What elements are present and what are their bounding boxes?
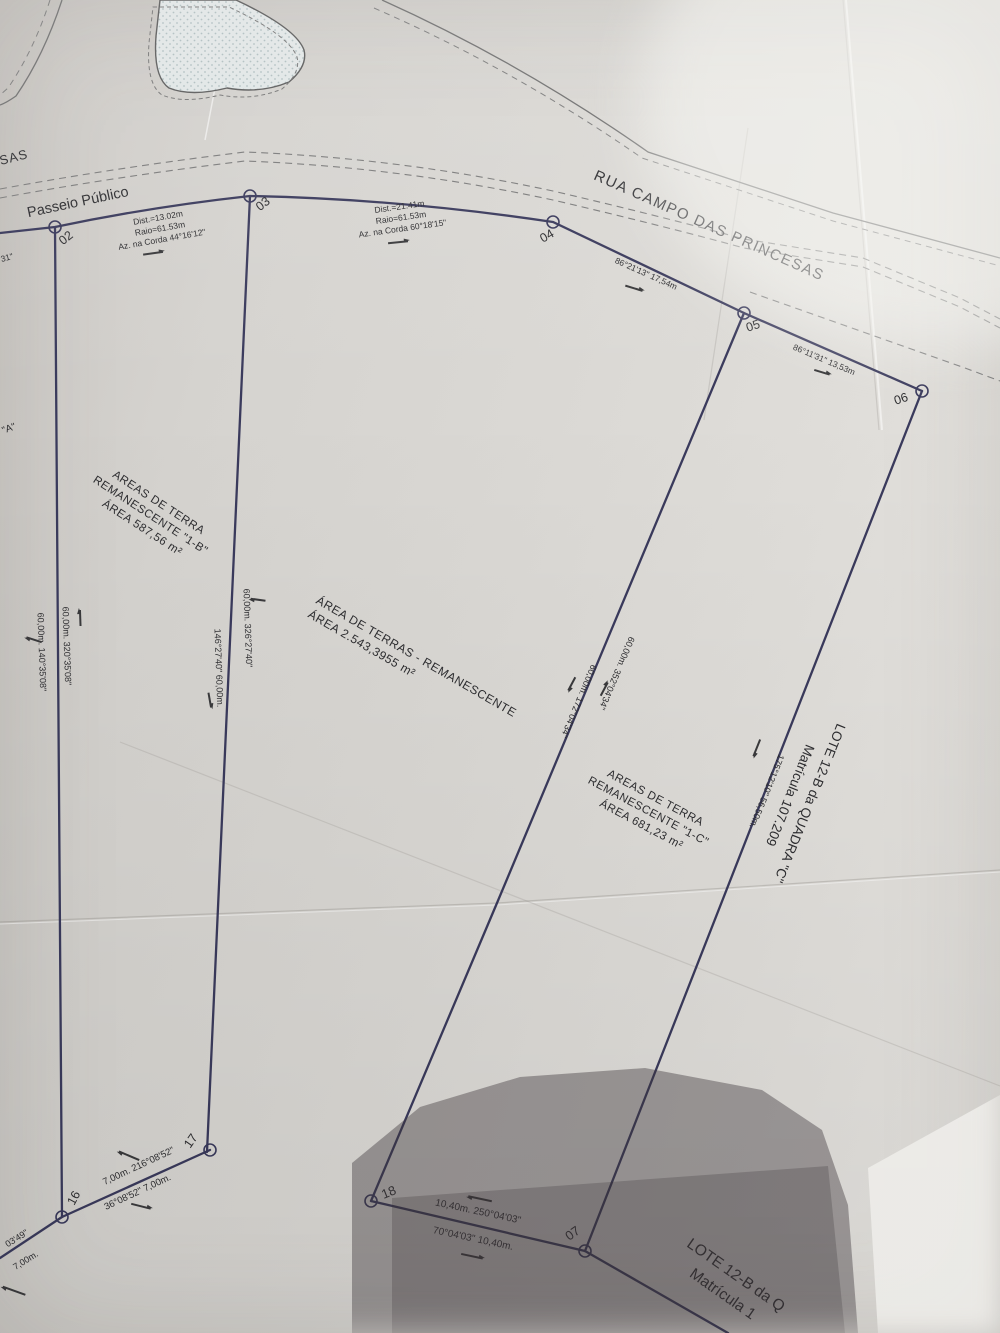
bearing-corner-partial-azimuth: 03'49": [3, 1227, 30, 1250]
area-1b-line3: ÁREA 587,56 m²: [82, 486, 203, 572]
segment-18-07: [371, 1201, 585, 1251]
bearing-mid-west: 60,00m. 172°04'34": [557, 663, 598, 740]
lot-title-east: LOTE 12-B da QUADRA "C" Matrícula 107.20…: [748, 712, 851, 885]
vertex-label-04: 04: [537, 225, 557, 246]
street-name-partial: SAS: [0, 146, 30, 169]
bearing-left-east: 60,00m. 320°35'08": [59, 607, 73, 686]
bearing-arrow: [2, 1286, 25, 1296]
lot-south-matricula: Matrícula 1: [668, 1252, 776, 1333]
area-remanescente-1c: AREAS DE TERRA REMANESCENTE "1-C" ÁREA 6…: [578, 761, 718, 864]
vertex-label-18: 18: [379, 1182, 399, 1203]
bearing-arrow: [814, 369, 830, 375]
boundary-left-line: [55, 227, 62, 1217]
bearing-arrow: [26, 637, 42, 643]
segment-16-corner: [0, 1217, 62, 1258]
division-line-mid: [371, 313, 744, 1201]
area-1c-line2: REMANESCENTE "1-C": [585, 774, 711, 850]
phone-shadow: [0, 0, 1000, 1333]
lot-east-matricula: Matrícula 107.209: [748, 712, 831, 878]
bearing-arrow: [600, 682, 608, 696]
bearing-corner-partial-distance: 7,00m.: [11, 1249, 41, 1273]
bearing-arrow: [119, 1151, 140, 1161]
hatched-area: [149, 0, 305, 100]
bearing-17-16-north: 7,00m. 216°08'52": [101, 1145, 177, 1189]
area-central-line2: ÁREA 2.543,3955 m²: [305, 607, 511, 735]
street-name-main: RUA CAMPO DAS PRINCESAS: [591, 166, 828, 286]
survey-plat-photo: SAS Passeio Público RUA CAMPO DAS PRINCE…: [0, 0, 1000, 1333]
area-1c-line3: ÁREA 681,23 m²: [578, 787, 704, 863]
vertex-label-06: 06: [892, 389, 910, 409]
vertex-label-07: 07: [562, 1223, 584, 1245]
bearing-04-05: 86°21'13" 17,54m: [613, 255, 679, 292]
bearing-18-07-north: 10,40m. 250°04'03": [434, 1197, 522, 1228]
bearing-arrow: [625, 285, 643, 292]
area-1b-line1: AREAS DE TERRA: [98, 461, 219, 547]
area-1b-line2: REMANESCENTE "1-B": [90, 473, 211, 559]
lot-south-name: LOTE 12-B da Q: [682, 1233, 790, 1318]
curve-note-1: Dist.=13.02m Raio=61.53m Az. na Corda 44…: [114, 205, 207, 253]
area-central-line1: ÁREA DE TERRAS - REMANESCENTE: [313, 593, 519, 721]
vertex-label-16: 16: [64, 1188, 85, 1208]
bearing-arrow: [568, 677, 576, 691]
segment-07-south: [585, 1251, 728, 1333]
paper-creases: [0, 0, 1000, 1086]
bearing-arrow: [461, 1253, 483, 1259]
boundary-front-line: [0, 196, 922, 391]
curve-1-azimuth: Az. na Corda 44°16'12": [117, 227, 206, 253]
bearing-1c-east: 175°12'10" 56,50m.: [746, 752, 786, 829]
curve-2-dist: Dist.=21.41m: [355, 195, 444, 218]
bearing-arrow: [143, 251, 163, 255]
vertex-label-17: 17: [180, 1131, 201, 1152]
lot-boundary-lines: [0, 196, 922, 1333]
area-1c-line1: AREAS DE TERRA: [592, 761, 718, 837]
bearing-arrow: [468, 1196, 492, 1202]
lot-title-south: LOTE 12-B da Q Matrícula 1: [668, 1233, 789, 1333]
area-remanescente-1b: AREAS DE TERRA REMANESCENTE "1-B" ÁREA 5…: [82, 461, 219, 572]
bearing-18-07-south: 70°04'03" 10,40m.: [432, 1224, 515, 1254]
bearing-arrow: [250, 598, 265, 602]
bearing-05-06: 86°11'31" 13,53m: [791, 342, 857, 378]
road-edge-lines: [0, 0, 1000, 381]
curve-note-2: Dist.=21.41m Raio=61.53m Az. na Corda 60…: [355, 195, 447, 240]
bearing-arrow: [388, 240, 408, 244]
edge-partial-seconds: 31": [0, 251, 14, 265]
boundary-line-1c-east: [585, 391, 922, 1251]
highlight-bottom-right: [0, 0, 1000, 1333]
highlight-top-right: [640, 0, 1000, 350]
bearing-arrow: [131, 1203, 151, 1209]
curve-2-radius: Raio=61.53m: [356, 206, 445, 229]
phone-shadow-core: [0, 0, 1000, 1333]
curve-2-azimuth: Az. na Corda 60°18'15": [358, 217, 447, 240]
paper-sheen: [0, 0, 1000, 1333]
area-central: ÁREA DE TERRAS - REMANESCENTE ÁREA 2.543…: [305, 593, 519, 735]
sidewalk-label: Passeio Público: [26, 183, 131, 223]
bearing-arrow: [753, 739, 761, 756]
edge-partial-quote: "A": [0, 421, 17, 438]
vertex-label-05: 05: [744, 316, 762, 336]
vertex-label-03: 03: [253, 193, 274, 214]
curve-1-radius: Raio=61.53m: [116, 216, 205, 242]
vertex-label-02: 02: [56, 227, 77, 248]
lot-east-name: LOTE 12-B da QUADRA "C": [767, 720, 850, 886]
bearing-arrow: [208, 692, 212, 707]
bearing-mid-east: 60,00m. 352°04'34": [595, 635, 636, 712]
bearing-1b-west: 146°27'40" 60,00m.: [211, 629, 225, 708]
bearing-17-16-south: 36°08'52" 7,00m.: [103, 1172, 174, 1214]
curve-1-dist: Dist.=13.02m: [114, 205, 203, 231]
division-line-1b: [207, 196, 250, 1152]
bearing-1b-east: 60,00m. 326°27'40": [240, 589, 254, 668]
segment-17-16: [62, 1150, 210, 1217]
bearing-left-west: 60,00m. 140°35'08": [34, 613, 48, 692]
bearing-arrow: [79, 610, 81, 626]
vertex-markers: [49, 190, 928, 1257]
plat-linework: [0, 0, 1000, 1333]
